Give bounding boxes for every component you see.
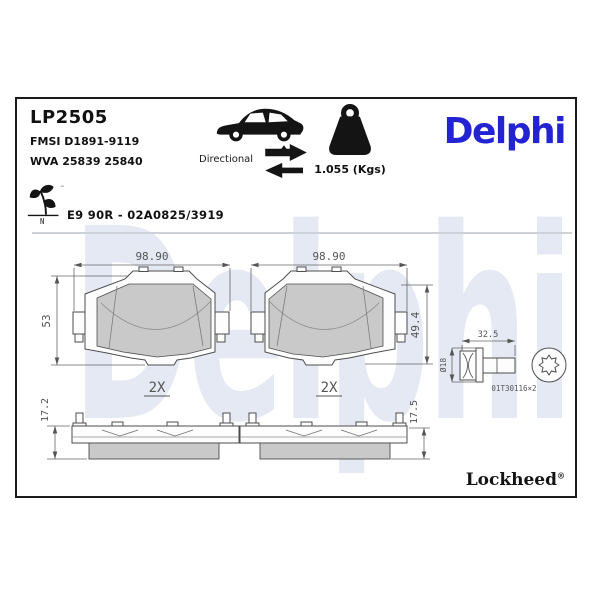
directional-label: Directional <box>199 154 253 165</box>
approval-code: E9 90R - 02A0825/3919 <box>67 208 224 222</box>
front-left-height-dim: 53 <box>40 314 53 327</box>
pad-front-left <box>73 267 229 365</box>
front-left-width-dim: 98.90 <box>135 250 168 263</box>
wva-code: WVA 25839 25840 <box>30 155 143 168</box>
leaf-left <box>30 189 41 198</box>
directional-arrows-icon <box>264 144 308 178</box>
front-left-qty: 2X <box>149 380 166 396</box>
mounting-bolt <box>460 348 515 382</box>
fmsi-code: FMSI D1891-9119 <box>30 135 139 148</box>
front-right-width-dim: 98.90 <box>312 250 345 263</box>
weight-label: 1.055 (Kgs) <box>314 163 386 176</box>
profile-right-thickness-dim: 17.5 <box>409 400 420 424</box>
front-right-qty: 2X <box>321 380 338 396</box>
delphi-logo: Delphi <box>444 111 565 152</box>
left-arrow-icon <box>265 163 303 178</box>
bolt-ref-label: 01T30116×2 <box>491 384 536 393</box>
bolt-diameter-dim: Ø18 <box>438 358 448 373</box>
eco-mark-letter: N <box>40 217 45 225</box>
eco-mark-tm: ™ <box>60 186 63 192</box>
pad-front-right <box>251 267 407 365</box>
pad-profile-left <box>72 413 239 459</box>
weight-icon <box>326 100 374 162</box>
leaf-top <box>40 185 53 193</box>
bolt-length-dim: 32.5 <box>478 330 498 340</box>
car-front-hub <box>233 132 239 138</box>
lockheed-wordmark: Lockheed <box>466 470 557 490</box>
car-rear-hub <box>281 132 287 138</box>
front-right-height-dim: 49.4 <box>409 311 422 338</box>
registered-mark: ® <box>557 470 565 480</box>
lockheed-logo: Lockheed® <box>466 470 565 490</box>
torx-head-view <box>532 348 566 382</box>
weight-body <box>331 118 369 153</box>
pad-profile-right <box>240 413 407 459</box>
part-number: LP2505 <box>30 107 108 128</box>
right-arrow-icon <box>265 144 307 161</box>
eco-leaf-icon: N ™ <box>25 183 67 225</box>
datasheet-border: Delphi LP2505 FMSI D1891-9119 WVA 25839 … <box>15 97 577 498</box>
profile-left-thickness-dim: 17.2 <box>40 398 51 422</box>
